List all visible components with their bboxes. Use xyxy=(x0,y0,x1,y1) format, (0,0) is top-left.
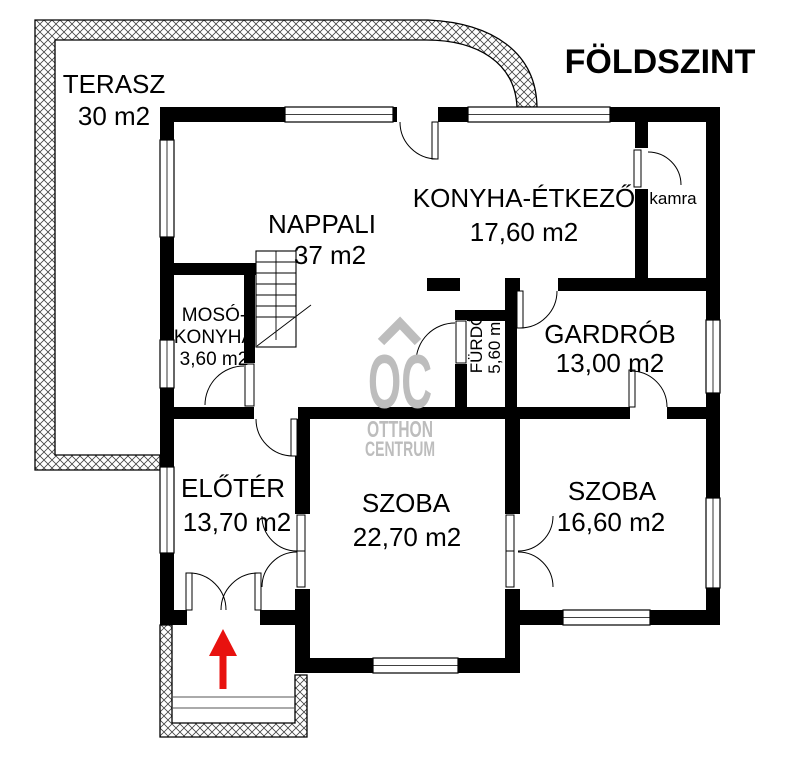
szoba-nagy-name: SZOBA xyxy=(362,488,451,518)
nappali-name: NAPPALI xyxy=(268,209,376,239)
wall-konyha-bottom-stub xyxy=(427,278,460,291)
eloter-area: 13,70 m2 xyxy=(183,507,291,537)
watermark-line2: CENTRUM xyxy=(365,438,435,461)
konyha-name: KONYHA-ÉTKEZŐ xyxy=(413,183,635,213)
watermark-logo: OC OTTHON CENTRUM xyxy=(365,323,435,461)
floor-plan-page: OC OTTHON CENTRUM FÖLDSZINT TERASZ 30 m2… xyxy=(0,0,800,782)
furdo-name: FÜRDŐ xyxy=(467,313,486,373)
moso-name-line2: KONYHA xyxy=(174,327,255,348)
furdo-area: 5,60 m2 xyxy=(485,312,504,373)
eloter-name: ELŐTÉR xyxy=(181,473,285,503)
nappali-area: 37 m2 xyxy=(294,240,366,270)
szoba-nagy-area: 22,70 m2 xyxy=(353,522,461,552)
moso-name-line1: MOSÓ- xyxy=(182,304,246,326)
wall-kamra-left xyxy=(635,122,648,278)
entry-arrow-shaft xyxy=(220,652,227,689)
watermark-logo-text: OC xyxy=(368,340,432,425)
szoba-kis-name: SZOBA xyxy=(568,476,657,506)
porch-band xyxy=(160,625,307,737)
entry-arrow-head xyxy=(209,629,237,656)
konyha-area: 17,60 m2 xyxy=(470,217,578,247)
plan-title: FÖLDSZINT xyxy=(565,43,756,81)
wall-main-horizontal xyxy=(160,407,706,419)
terasz-area: 30 m2 xyxy=(78,101,150,131)
gardrob-area: 13,00 m2 xyxy=(556,348,664,378)
floor-plan-drawing: OC OTTHON CENTRUM FÖLDSZINT TERASZ 30 m2… xyxy=(0,0,800,782)
wall-furdo-right xyxy=(505,278,517,419)
kamra-name: kamra xyxy=(649,189,697,208)
moso-area: 3,60 m2 xyxy=(180,349,249,370)
terasz-name: TERASZ xyxy=(63,69,166,99)
gardrob-name: GARDRÓB xyxy=(544,319,675,349)
entry-arrow xyxy=(209,629,237,689)
szoba-kis-area: 16,60 m2 xyxy=(557,507,665,537)
